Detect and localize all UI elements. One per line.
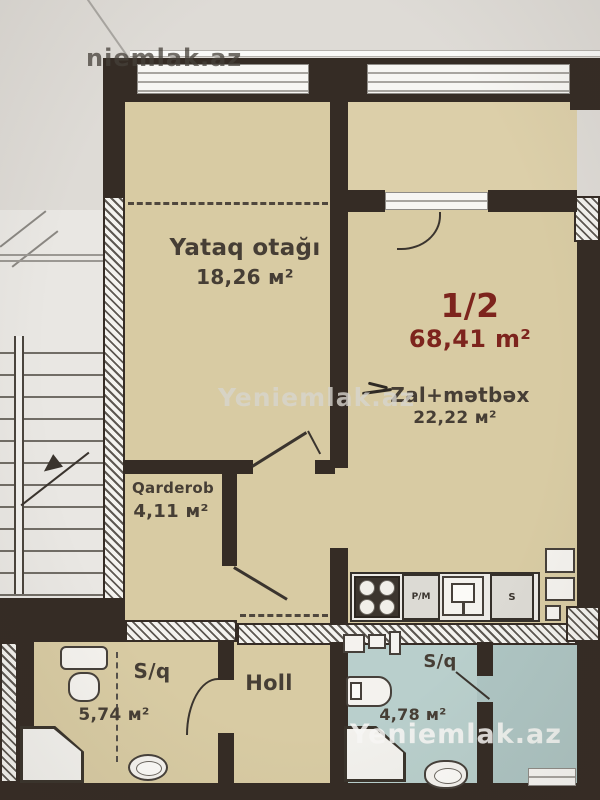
wall-left-upper xyxy=(103,100,125,196)
stove-icon xyxy=(354,576,400,618)
wall-kitchen-hatched xyxy=(237,623,577,645)
toilet-icon xyxy=(68,672,100,702)
window-loggia-living xyxy=(385,192,488,210)
stair-railing xyxy=(14,336,24,594)
wall-right-main xyxy=(577,242,600,783)
wardrobe-name-label: Qarderob xyxy=(126,480,220,497)
watermark-bottom: Yeniemlak.az xyxy=(350,719,562,750)
vent-box xyxy=(368,634,386,649)
wall-bathright-lobby-upper xyxy=(477,642,493,676)
burner-icon xyxy=(359,580,375,596)
toilet-icon xyxy=(424,760,468,789)
kitchen-sink-icon xyxy=(442,576,484,616)
shaft-box xyxy=(545,605,561,621)
fridge-unit: S xyxy=(490,574,534,620)
bathroom-left-name-label: S/q xyxy=(124,660,180,682)
stair-landing-edge xyxy=(0,254,103,262)
wall-loggia-living-right xyxy=(488,190,577,212)
wardrobe-area-label: 4,11 м² xyxy=(122,502,220,522)
burner-icon xyxy=(379,599,395,615)
wall-loggia-living-left xyxy=(348,190,385,212)
bedroom-area-label: 18,26 м² xyxy=(140,266,350,288)
bathroom-left-area-label: 5,74 м² xyxy=(66,706,162,725)
wall-left-hatched xyxy=(103,196,125,642)
wall-bedroom-bottom-right xyxy=(315,460,335,474)
wall-hall-bathleft-lower xyxy=(218,733,234,783)
bedroom-name-label: Yataq otağı xyxy=(140,236,350,261)
wall-right-hatched xyxy=(574,196,600,242)
watermark-middle: Yeniemlak.az xyxy=(218,383,415,412)
unit-number-label: 1/2 xyxy=(380,288,560,324)
bathroom-right-name-label: S/q xyxy=(412,652,468,672)
wall-bottom xyxy=(0,783,600,800)
shaft-box xyxy=(545,548,575,573)
hall-open-boundary-dashed xyxy=(240,614,328,617)
window-lobby xyxy=(528,768,576,786)
burner-icon xyxy=(379,580,395,596)
unit-area-label: 68,41 m² xyxy=(380,326,560,352)
wall-right-top-corner xyxy=(570,58,600,110)
wall-corner-hatched xyxy=(566,606,600,642)
burner-icon xyxy=(359,599,375,615)
wall-wardrobe-right xyxy=(222,474,237,566)
toilet-icon xyxy=(60,646,108,670)
floor-plan-photo: P/M S Yataq otağı 18,26 м² 1/2 68,41 m² … xyxy=(0,0,600,800)
wall-stairs-bottom xyxy=(0,598,125,642)
sink-icon xyxy=(128,754,168,781)
hall-name-label: Holl xyxy=(230,672,308,695)
room-loggia xyxy=(348,98,577,192)
bedroom-dashed-line xyxy=(128,202,328,205)
vent-box xyxy=(389,631,401,655)
dishwasher-label: P/M xyxy=(412,592,431,602)
shaft-box xyxy=(545,577,575,601)
fridge-label: S xyxy=(508,592,515,603)
dishwasher-unit: P/M xyxy=(402,574,440,620)
window-loggia xyxy=(367,64,570,94)
watermark-top: niemlak.az xyxy=(86,44,242,72)
sink-icon xyxy=(346,676,392,707)
wall-bedroom-bottom xyxy=(125,460,253,474)
wall-wardrobe-bottom-hatched xyxy=(125,620,237,642)
vent-box xyxy=(343,634,365,653)
